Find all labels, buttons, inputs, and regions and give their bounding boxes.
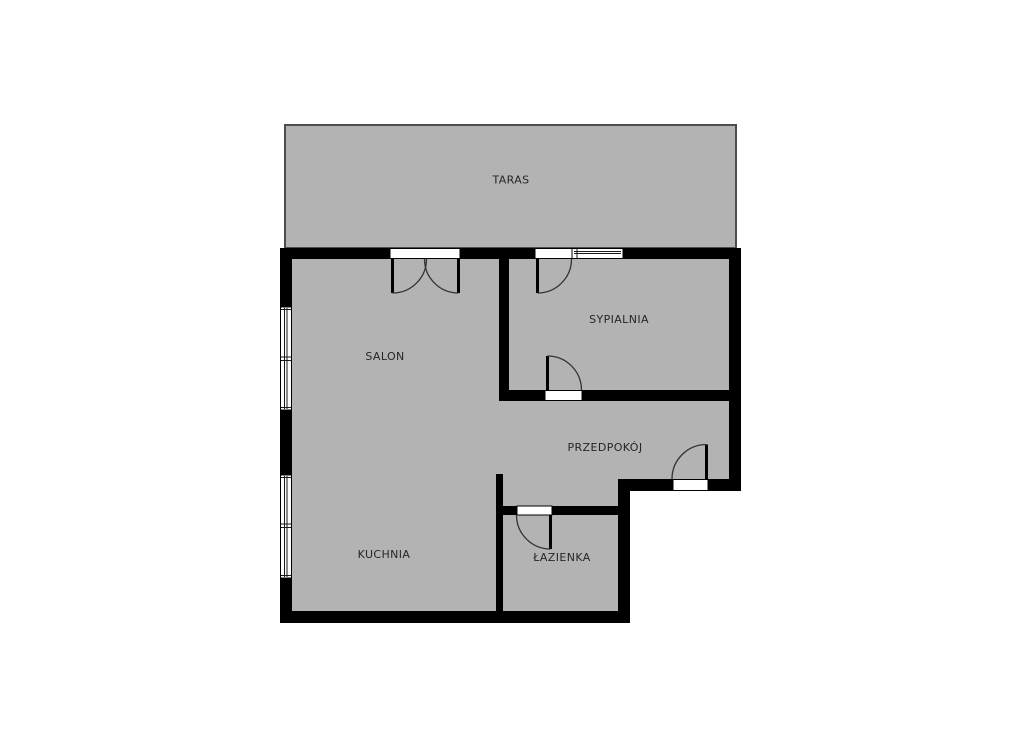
wall-bottom xyxy=(280,611,630,623)
entrance-door-opening xyxy=(673,480,708,491)
apartment-floor xyxy=(280,248,741,623)
wall-bathroom-right xyxy=(618,479,630,623)
room-label-taras: TARAS xyxy=(491,174,529,187)
bedroom-window xyxy=(572,249,623,259)
bathroom-door-opening xyxy=(517,506,552,515)
room-label-salon: SALON xyxy=(365,350,404,363)
wall-right xyxy=(729,248,741,491)
room-label-przedpokoj: PRZEDPOKÓJ xyxy=(567,441,642,454)
wall-salon-bedroom-divider xyxy=(499,259,509,401)
terrace-area xyxy=(285,125,736,248)
room-label-kuchnia: KUCHNIA xyxy=(358,548,411,561)
wall-top xyxy=(280,248,741,259)
kitchen-window xyxy=(281,475,292,578)
room-label-sypialnia: SYPIALNIA xyxy=(589,313,649,326)
terrace-floor xyxy=(285,125,736,248)
wall-bedroom-hall-divider xyxy=(499,390,729,401)
bedroom-door-opening xyxy=(545,391,582,401)
floorplan-drawing: TARAS SALON SYPIALNIA PRZEDPOKÓJ KUCHNIA… xyxy=(0,0,1024,749)
room-label-lazienka: ŁAZIENKA xyxy=(532,551,590,564)
bedroom-balcony-door-opening xyxy=(535,249,572,259)
salon-balcony-door-opening xyxy=(390,249,460,259)
wall-kitchen-bathroom-divider xyxy=(496,474,503,611)
wall-bathroom-top xyxy=(496,506,618,515)
floorplan-canvas: TARAS SALON SYPIALNIA PRZEDPOKÓJ KUCHNIA… xyxy=(0,0,1024,749)
salon-window xyxy=(281,307,292,410)
